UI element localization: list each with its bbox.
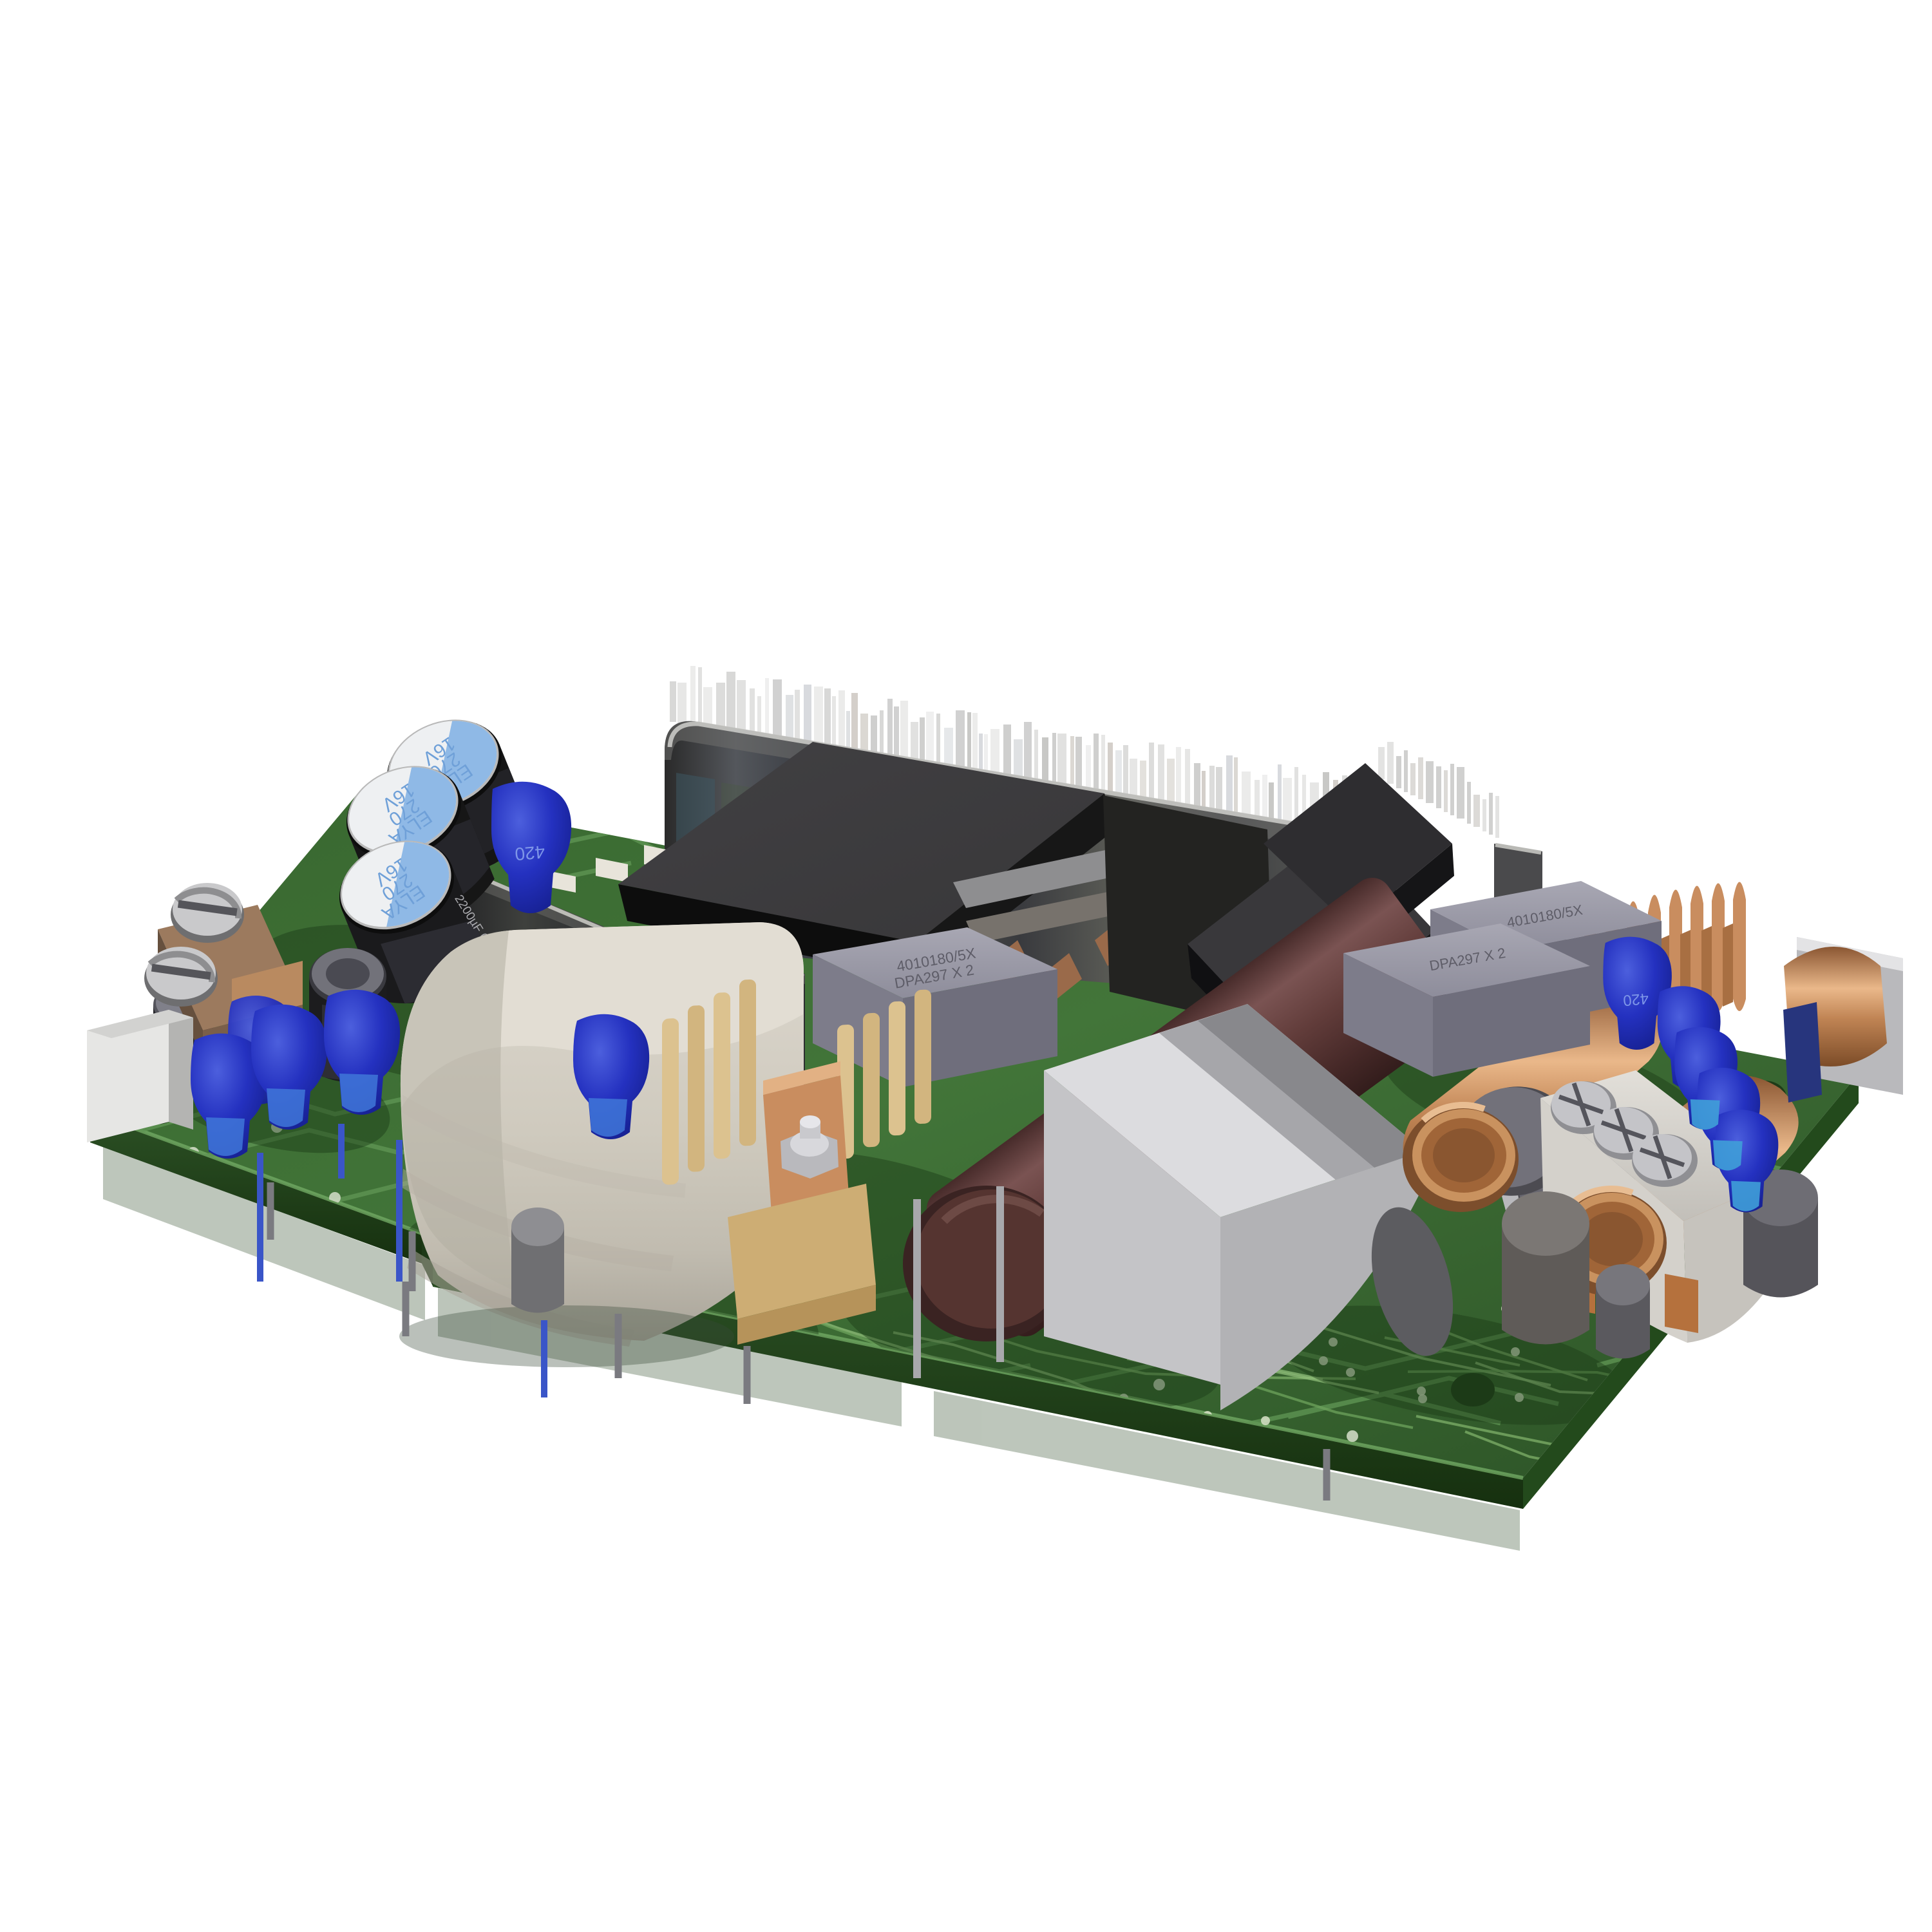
svg-text:420: 420 [1622,990,1649,1009]
svg-text:420: 420 [514,842,545,864]
